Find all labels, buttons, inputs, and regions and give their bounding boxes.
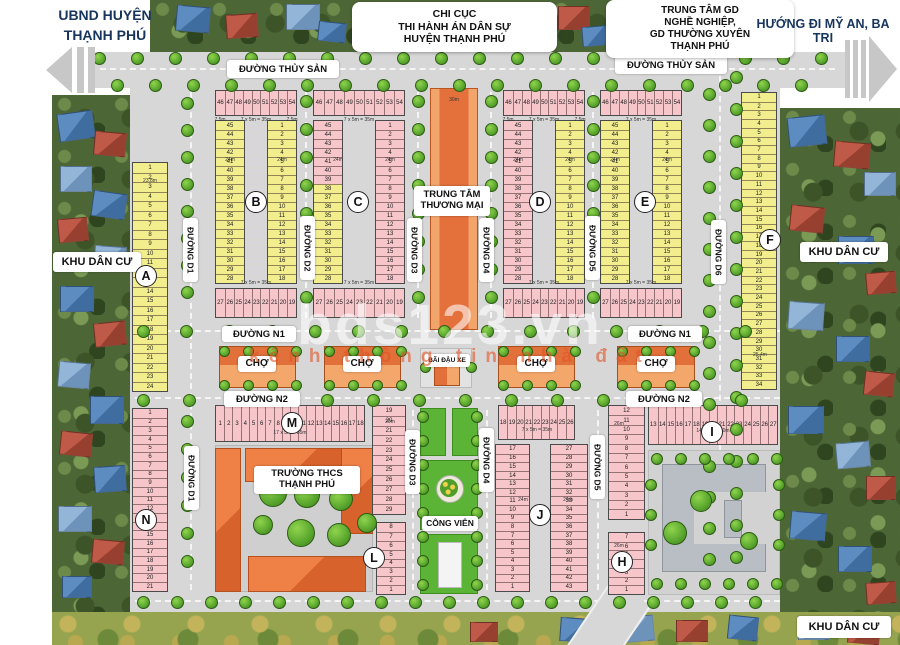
plot-cell: 45 [314, 121, 342, 130]
plot-cell: 8 [742, 154, 776, 163]
plot-cell: 26 [324, 289, 334, 317]
plot-cell: 14 [376, 238, 404, 247]
block-E-plot-row: 464748495051525354 [600, 90, 682, 116]
plot-cell: 3 [376, 139, 404, 148]
tree-icon [771, 578, 783, 590]
plot-cell: 53 [278, 91, 287, 115]
plot-cell: 6 [496, 539, 529, 548]
tree-icon [730, 199, 743, 212]
dimension-label: 24m [225, 157, 235, 163]
street-label-n1_right: ĐƯỜNG N1 [628, 326, 702, 342]
plot-cell: 14 [556, 238, 584, 247]
plot-cell: 32 [216, 238, 244, 247]
tree-icon [498, 380, 509, 391]
block-badge-C: C [347, 191, 369, 213]
plot-cell: 48 [522, 91, 531, 115]
plot-cell: 2 [653, 130, 681, 139]
plot-cell: 29 [373, 504, 405, 514]
plot-cell: 51 [364, 91, 374, 115]
block-badge-B: B [245, 191, 267, 213]
plot-cell: 49 [628, 91, 637, 115]
tree-icon [443, 596, 456, 609]
street-label-d1_lower: ĐƯỜNG D1 [184, 446, 199, 510]
dimension-label: 7 x 5m = 35m [522, 427, 552, 433]
plot-cell: 2 [224, 406, 232, 441]
street-label-n2_left: ĐƯỜNG N2 [224, 391, 300, 407]
plot-cell: 54 [672, 91, 681, 115]
block-E-plot-row: 272625242322212019 [600, 288, 682, 318]
plot-cell: 7 [609, 453, 644, 462]
plot-cell: 27 [504, 289, 513, 317]
tree-icon [641, 346, 652, 357]
tree-icon [471, 579, 483, 591]
plot-cell: 10 [268, 202, 296, 211]
plot-cell: 4 [653, 148, 681, 157]
arrow-right-icon [869, 36, 897, 102]
tree-icon [567, 79, 580, 92]
plot-cell: 21 [524, 406, 532, 439]
plot-cell: 32 [551, 488, 587, 497]
plot-cell: 17 [653, 265, 681, 274]
plot-cell: 50 [540, 91, 549, 115]
plot-cell: 23 [637, 289, 646, 317]
tree-icon [570, 346, 581, 357]
street-label-d3_upper: ĐƯỜNG D3 [407, 218, 422, 282]
plot-cell: 3 [377, 567, 405, 576]
plot-cell: 8 [556, 184, 584, 193]
tree-icon [740, 532, 758, 550]
plot-cell: 2 [133, 418, 167, 427]
plot-cell: 52 [269, 91, 278, 115]
tree-icon [645, 509, 657, 521]
plot-cell: 22 [742, 276, 776, 285]
tree-icon [219, 346, 230, 357]
plot-cell: 30 [314, 256, 342, 265]
plot-cell: 17 [556, 265, 584, 274]
plot-cell: 22 [373, 435, 405, 445]
plot-cell: 36 [601, 202, 629, 211]
plot-cell: 9 [133, 478, 167, 487]
plot-cell: 27 [768, 406, 777, 444]
plot-cell: 8 [653, 184, 681, 193]
plot-cell: 2 [742, 102, 776, 111]
tree-icon [438, 325, 451, 338]
tree-icon [339, 79, 352, 92]
dimension-label: 7 x 5m = 35m [241, 117, 271, 123]
tree-icon [459, 394, 472, 407]
plot-cell: 9 [556, 193, 584, 202]
tree-icon [395, 325, 408, 338]
plot-cell: 11 [376, 211, 404, 220]
plot-cell: 5 [742, 128, 776, 137]
block-J-plot-row: 1716151413121110987654321 [495, 444, 530, 592]
plot-cell: 17 [348, 406, 356, 441]
plot-cell: 28 [314, 274, 342, 283]
plot-cell: 52 [557, 91, 566, 115]
plot-cell: 1 [216, 406, 224, 441]
dimension-label: 20m [385, 419, 395, 425]
plot-cell: 49 [531, 91, 540, 115]
plot-cell: 23 [354, 289, 364, 317]
plot-cell: 46 [314, 91, 324, 115]
plot-cell: 13 [653, 229, 681, 238]
plot-cell: 32 [504, 238, 532, 247]
street-label-d3_lower: ĐƯỜNG D3 [405, 430, 420, 494]
street-label-n1_left: ĐƯỜNG N1 [222, 326, 296, 342]
tree-icon [291, 346, 302, 357]
plot-cell: 11 [653, 211, 681, 220]
plot-cell: 51 [260, 91, 269, 115]
plot-cell: 13 [742, 197, 776, 206]
plot-cell: 14 [268, 238, 296, 247]
tree-icon [545, 596, 558, 609]
tree-icon [415, 79, 428, 92]
plot-cell: 15 [376, 247, 404, 256]
dimension-label: 24m [513, 157, 523, 163]
tree-icon [300, 123, 313, 136]
tree-icon [719, 79, 732, 92]
tree-icon [477, 596, 490, 609]
tree-icon [703, 398, 716, 411]
plot-cell: 18 [268, 274, 296, 283]
plot-cell: 42 [601, 148, 629, 157]
plot-cell: 25 [334, 289, 344, 317]
dimension-label: 24m [277, 157, 287, 163]
tree-icon [324, 380, 335, 391]
tree-icon [263, 79, 276, 92]
tree-icon [730, 135, 743, 148]
tree-icon [703, 150, 716, 163]
tree-icon [689, 380, 700, 391]
plot-cell: 7 [133, 220, 167, 230]
plot-cell: 23 [541, 406, 549, 439]
block-J-plot-row: 2728293031323334353637383940414243 [550, 444, 588, 592]
tree-icon [273, 596, 286, 609]
plot-cell: 13 [556, 229, 584, 238]
plot-cell: 11 [556, 211, 584, 220]
house-roof-icon [57, 361, 91, 390]
tree-icon [300, 179, 313, 192]
plot-cell: 6 [257, 406, 265, 441]
plot-cell: 20 [566, 289, 575, 317]
tree-icon [181, 151, 194, 164]
tree-icon [597, 394, 610, 407]
plot-cell: 18 [133, 556, 167, 565]
plot-cell: 37 [504, 193, 532, 202]
tree-icon [417, 579, 429, 591]
dimension-label: 7 x 5m = 35m [626, 117, 656, 123]
plot-cell: 22 [548, 289, 557, 317]
tree-icon [181, 527, 194, 540]
plot-cell: 47 [513, 91, 522, 115]
plot-cell: 6 [377, 541, 405, 550]
plot-cell: 1 [653, 121, 681, 130]
street-label-thuysan_left: ĐƯỜNG THỦY SẢN [227, 60, 339, 78]
plot-cell: 18 [556, 274, 584, 283]
house-roof-icon [789, 510, 827, 541]
dimension-label: 7.5m [502, 117, 513, 123]
plot-cell: 44 [216, 130, 244, 139]
plot-cell: 19 [373, 406, 405, 416]
plot-cell: 14 [653, 238, 681, 247]
tree-icon [412, 95, 425, 108]
plot-cell: 5 [133, 444, 167, 453]
house-roof-icon [866, 476, 896, 500]
plot-cell: 51 [548, 91, 557, 115]
block-D-plot-row: 464748495051525354 [503, 90, 585, 116]
tree-icon [730, 263, 743, 276]
tree-icon [651, 453, 663, 465]
plot-cell: 12 [376, 220, 404, 229]
plot-cell: 33 [601, 229, 629, 238]
plot-cell: 7 [265, 406, 273, 441]
plot-cell: 2 [556, 130, 584, 139]
plot-cell: 4 [268, 148, 296, 157]
tree-icon [180, 325, 193, 338]
tree-icon [524, 325, 537, 338]
tree-icon [703, 522, 716, 535]
tree-icon [773, 509, 785, 521]
plot-cell: 35 [601, 211, 629, 220]
plot-cell: 26 [610, 289, 619, 317]
tree-icon [739, 325, 752, 338]
plot-cell: 22 [260, 289, 269, 317]
plot-cell: 39 [601, 175, 629, 184]
tree-icon [417, 411, 429, 423]
tree-icon [377, 79, 390, 92]
plot-cell: 8 [376, 184, 404, 193]
tree-icon [617, 380, 628, 391]
tree-icon [453, 79, 466, 92]
landmark-label-commercial_center: TRUNG TÂM THƯƠNG MẠI [414, 186, 490, 216]
plot-cell: 15 [133, 530, 167, 539]
tree-icon [505, 394, 518, 407]
tree-icon [341, 596, 354, 609]
plot-cell: 50 [354, 91, 364, 115]
plot-cell: 47 [610, 91, 619, 115]
tree-icon [321, 394, 334, 407]
plot-cell: 12 [306, 406, 314, 441]
street-label-d1_upper: ĐƯỜNG D1 [183, 218, 198, 282]
plot-cell: 41 [551, 565, 587, 574]
plot-cell: 47 [324, 91, 334, 115]
tree-icon [471, 411, 483, 423]
plot-cell: 9 [133, 239, 167, 249]
tree-icon [681, 596, 694, 609]
street-label-d2: ĐƯỜNG D2 [300, 216, 315, 280]
plot-cell: 16 [133, 306, 167, 316]
tree-icon [730, 103, 743, 116]
tree-icon [485, 123, 498, 136]
plot-cell: 38 [216, 184, 244, 193]
plot-cell: 1 [133, 409, 167, 418]
plot-cell: 9 [653, 193, 681, 202]
plot-cell: 53 [566, 91, 575, 115]
plot-cell: 25 [742, 302, 776, 311]
plot-cell: 5 [249, 406, 257, 441]
plot-cell: 32 [742, 363, 776, 372]
tree-icon [703, 553, 716, 566]
dimension-label: 24m [662, 157, 672, 163]
plot-cell: 16 [675, 406, 684, 444]
plot-cell: 31 [551, 479, 587, 488]
plot-cell: 13 [496, 479, 529, 488]
tree-icon [730, 551, 743, 564]
block-B-plot-row: 464748495051525354 [215, 90, 297, 116]
plot-cell: 4 [241, 406, 249, 441]
plot-cell: 24 [133, 382, 167, 392]
tree-icon [643, 79, 656, 92]
plot-cell: 20 [663, 289, 672, 317]
plot-cell: 14 [742, 206, 776, 215]
tree-icon [665, 380, 676, 391]
plot-cell: 35 [216, 211, 244, 220]
landmark-label-residential_bottom: KHU DÂN CƯ [797, 616, 891, 638]
tree-icon [485, 95, 498, 108]
plot-cell: 6 [268, 166, 296, 175]
dimension-label: 24m [333, 157, 343, 163]
plot-cell: 48 [334, 91, 344, 115]
block-badge-I: I [701, 421, 723, 443]
tree-icon [300, 151, 313, 164]
plot-cell: 1 [377, 585, 405, 594]
plot-cell: 22 [133, 363, 167, 373]
tree-icon [747, 578, 759, 590]
plot-cell: 20 [516, 406, 524, 439]
arrow-left-bar [88, 47, 95, 93]
plot-cell: 16 [496, 454, 529, 463]
plot-cell: 6 [653, 166, 681, 175]
plot-cell: 21 [742, 267, 776, 276]
tree-icon [307, 596, 320, 609]
tree-icon [522, 346, 533, 357]
tree-icon [417, 531, 429, 543]
tree-icon [647, 596, 660, 609]
block-C-plot-row: 123456789101112131415161718 [375, 120, 405, 284]
plot-cell: 11 [133, 496, 167, 505]
plot-cell: 43 [551, 582, 587, 591]
street-label-d6: ĐƯỜNG D6 [711, 220, 726, 284]
block-B-plot-row: 272625242322212019 [215, 288, 297, 318]
tree-icon [587, 52, 600, 65]
tree-icon [567, 325, 580, 338]
tree-icon [491, 79, 504, 92]
tree-icon [181, 415, 194, 428]
plot-cell: 4 [742, 119, 776, 128]
plot-cell: 31 [216, 247, 244, 256]
house-roof-icon [676, 620, 708, 642]
tree-icon [690, 490, 712, 512]
plot-cell: 40 [216, 166, 244, 175]
dimension-label: 24m [385, 157, 395, 163]
tree-icon [396, 380, 407, 391]
landmark-label-residential_left: KHU DÂN CƯ [53, 252, 141, 272]
tree-icon [205, 596, 218, 609]
tree-icon [551, 394, 564, 407]
plot-cell: 14 [323, 406, 331, 441]
arrow-right-bar [861, 40, 866, 98]
plot-cell: 19 [672, 289, 681, 317]
landmark-label-market_2: CHỢ [343, 356, 381, 372]
plot-cell: 42 [314, 148, 342, 157]
tree-icon [641, 380, 652, 391]
plot-cell: 25 [557, 406, 565, 439]
house-roof-icon [58, 506, 92, 532]
tree-icon [703, 305, 716, 318]
house-roof-icon [836, 336, 870, 362]
block-badge-J: J [529, 504, 551, 526]
plot-cell: 24 [531, 289, 540, 317]
plot-cell: 39 [216, 175, 244, 184]
park-building [438, 542, 462, 588]
house-roof-icon [91, 539, 125, 566]
plot-cell: 31 [504, 247, 532, 256]
house-roof-icon [788, 406, 824, 434]
plot-cell: 7 [653, 175, 681, 184]
plot-cell: 22 [645, 289, 654, 317]
tree-icon [413, 394, 426, 407]
plot-cell: 40 [314, 166, 342, 175]
tree-icon [570, 380, 581, 391]
plot-cell: 8 [496, 522, 529, 531]
plot-cell: 37 [216, 193, 244, 202]
block-badge-D: D [529, 191, 551, 213]
plot-cell: 2 [496, 574, 529, 583]
plot-cell: 27 [373, 485, 405, 495]
plot-cell: 3 [742, 110, 776, 119]
plot-cell: 37 [601, 193, 629, 202]
tree-icon [219, 380, 230, 391]
plot-cell: 25 [751, 406, 760, 444]
tree-icon [715, 596, 728, 609]
plot-cell: 25 [373, 465, 405, 475]
tree-icon [617, 346, 628, 357]
plot-cell: 31 [601, 247, 629, 256]
tree-icon [730, 231, 743, 244]
house-roof-icon [787, 114, 828, 148]
tree-icon [137, 325, 150, 338]
plot-cell: 29 [504, 265, 532, 274]
plot-cell: 7 [742, 145, 776, 154]
plot-cell: 38 [601, 184, 629, 193]
plot-cell: 20 [384, 289, 394, 317]
tree-icon [181, 124, 194, 137]
tree-icon [137, 394, 150, 407]
plot-cell: 17 [133, 315, 167, 325]
dimension-label: 7 x 5m = 35m [529, 280, 559, 286]
plot-cell: 9 [609, 434, 644, 443]
tree-icon [773, 539, 785, 551]
plot-cell: 14 [658, 406, 667, 444]
plot-cell: 30 [551, 471, 587, 480]
plot-cell: 24 [549, 406, 557, 439]
plot-cell: 44 [601, 130, 629, 139]
plot-cell: 1 [742, 93, 776, 102]
plot-cell: 46 [504, 91, 513, 115]
plot-cell: 11 [742, 180, 776, 189]
plot-cell: 10 [742, 171, 776, 180]
tree-icon [300, 95, 313, 108]
plot-cell: 21 [654, 289, 663, 317]
dimension-label: 7 x 5m = 35m [344, 280, 374, 286]
plot-cell: 8 [609, 444, 644, 453]
plot-cell: 52 [654, 91, 663, 115]
plot-cell: 43 [601, 139, 629, 148]
plot-cell: 6 [133, 211, 167, 221]
tree-icon [412, 151, 425, 164]
landmark-label-market_3: CHỢ [517, 356, 555, 372]
plot-cell: 6 [556, 166, 584, 175]
